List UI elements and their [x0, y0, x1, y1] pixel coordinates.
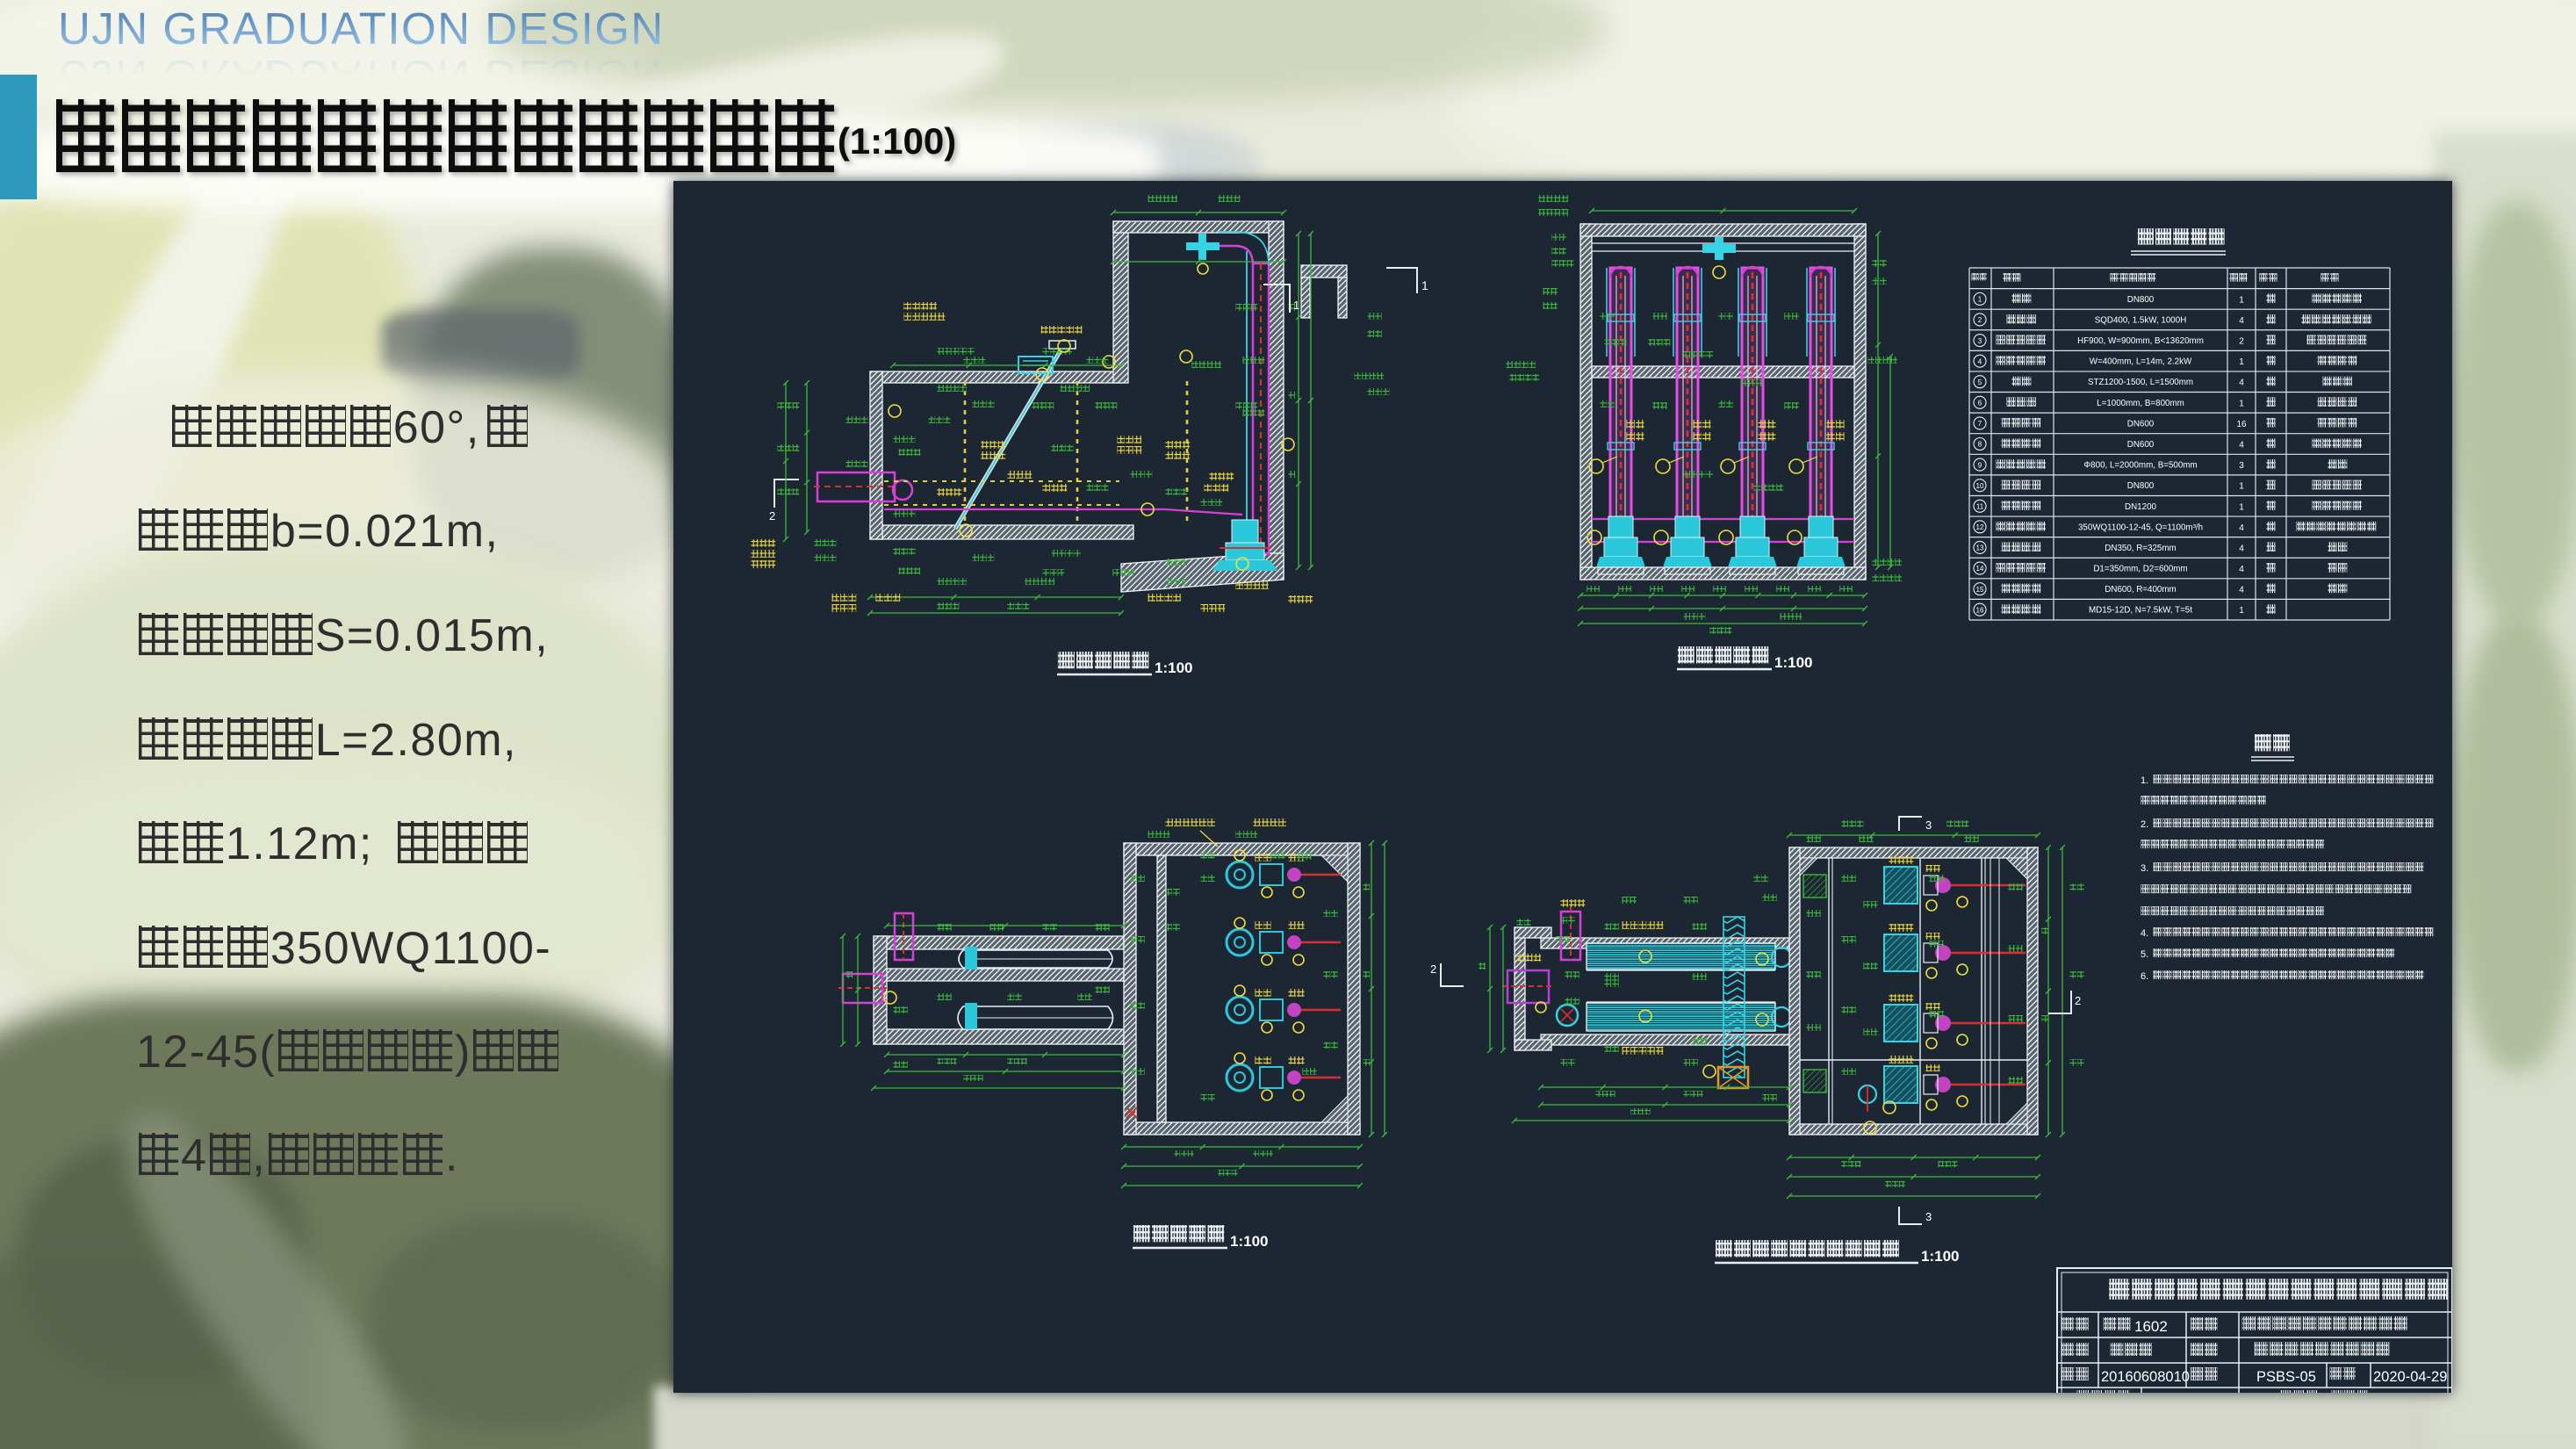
svg-text:6: 6 — [1978, 400, 1982, 407]
svg-text:1: 1 — [2239, 606, 2244, 616]
svg-text:MD15-12D, N=7.5kW, T=5t: MD15-12D, N=7.5kW, T=5t — [2089, 606, 2192, 616]
svg-text:1: 1 — [2239, 482, 2244, 492]
svg-text:4: 4 — [2239, 586, 2244, 595]
svg-text:20160608010: 20160608010 — [2101, 1369, 2190, 1385]
svg-text:1:100: 1:100 — [1921, 1248, 1959, 1265]
svg-text:4: 4 — [2239, 565, 2244, 574]
svg-text:1: 1 — [2239, 357, 2244, 367]
svg-text:11: 11 — [1976, 502, 1984, 510]
svg-text:1: 1 — [1421, 278, 1428, 292]
svg-text:5.: 5. — [2141, 949, 2148, 960]
svg-text:4.: 4. — [2141, 928, 2148, 939]
svg-text:1.: 1. — [2141, 775, 2148, 786]
svg-text:4: 4 — [2239, 316, 2244, 326]
svg-text:350WQ1100-12-45, Q=1100m³/h: 350WQ1100-12-45, Q=1100m³/h — [2078, 523, 2203, 532]
svg-text:DN1200: DN1200 — [2125, 502, 2156, 512]
svg-text:13: 13 — [1976, 544, 1984, 552]
svg-text:1: 1 — [1293, 299, 1299, 312]
svg-text:3: 3 — [1925, 818, 1932, 832]
svg-text:1: 1 — [2239, 295, 2244, 305]
svg-text:5: 5 — [1978, 378, 1982, 386]
svg-text:PSBS-05: PSBS-05 — [2256, 1369, 2316, 1385]
svg-text:3: 3 — [1925, 1210, 1932, 1223]
svg-text:1:100: 1:100 — [1230, 1233, 1268, 1250]
svg-text:L=1000mm, B=800mm: L=1000mm, B=800mm — [2097, 399, 2184, 408]
svg-text:HF900, W=900mm, B<13620mm: HF900, W=900mm, B<13620mm — [2077, 336, 2204, 346]
svg-text:4: 4 — [1978, 357, 1982, 365]
svg-text:10: 10 — [1976, 482, 1984, 490]
svg-text:Φ800, L=2000mm, B=500mm: Φ800, L=2000mm, B=500mm — [2083, 461, 2197, 471]
svg-text:3.: 3. — [2141, 863, 2148, 874]
svg-text:2: 2 — [2239, 337, 2244, 347]
svg-text:2: 2 — [1430, 962, 1436, 976]
svg-text:1: 1 — [1978, 296, 1982, 304]
svg-text:4: 4 — [2239, 523, 2244, 533]
svg-text:SQD400, 1.5kW, 1000H: SQD400, 1.5kW, 1000H — [2095, 315, 2187, 325]
svg-text:DN600: DN600 — [2127, 419, 2155, 429]
svg-text:2: 2 — [769, 509, 775, 523]
svg-text:DN600, R=400mm: DN600, R=400mm — [2105, 585, 2176, 595]
svg-text:14: 14 — [1976, 565, 1984, 573]
svg-text:8: 8 — [1978, 441, 1982, 449]
svg-text:DN600: DN600 — [2127, 440, 2155, 450]
svg-text:W=400mm, L=14m, 2.2kW: W=400mm, L=14m, 2.2kW — [2090, 357, 2192, 367]
svg-text:DN800: DN800 — [2127, 481, 2155, 491]
svg-text:12: 12 — [1976, 523, 1984, 531]
svg-text:STZ1200-1500, L=1500mm: STZ1200-1500, L=1500mm — [2088, 378, 2193, 387]
svg-text:4: 4 — [2239, 544, 2244, 553]
svg-text:7: 7 — [1978, 420, 1982, 428]
svg-text:2: 2 — [2075, 994, 2081, 1007]
svg-text:D1=350mm, D2=600mm: D1=350mm, D2=600mm — [2093, 565, 2187, 574]
svg-text:DN350, R=325mm: DN350, R=325mm — [2105, 544, 2176, 553]
svg-text:16: 16 — [1976, 606, 1984, 614]
svg-text:15: 15 — [1976, 586, 1984, 594]
svg-text:3: 3 — [1978, 337, 1982, 345]
svg-text:1: 1 — [2239, 502, 2244, 512]
svg-text:4: 4 — [2239, 378, 2244, 388]
svg-text:1:100: 1:100 — [1774, 654, 1812, 671]
svg-text:4: 4 — [2239, 441, 2244, 451]
svg-text:1: 1 — [2239, 399, 2244, 408]
svg-text:3: 3 — [2239, 461, 2244, 471]
svg-text:DN800: DN800 — [2127, 295, 2155, 305]
svg-text:1602: 1602 — [2134, 1318, 2168, 1335]
svg-text:2.: 2. — [2141, 819, 2148, 830]
svg-text:2: 2 — [1978, 316, 1982, 324]
svg-text:16: 16 — [2236, 420, 2247, 429]
svg-text:2020-04-29: 2020-04-29 — [2373, 1369, 2447, 1385]
svg-text:6.: 6. — [2141, 971, 2148, 982]
svg-text:9: 9 — [1978, 461, 1982, 469]
svg-text:1:100: 1:100 — [1155, 660, 1192, 676]
